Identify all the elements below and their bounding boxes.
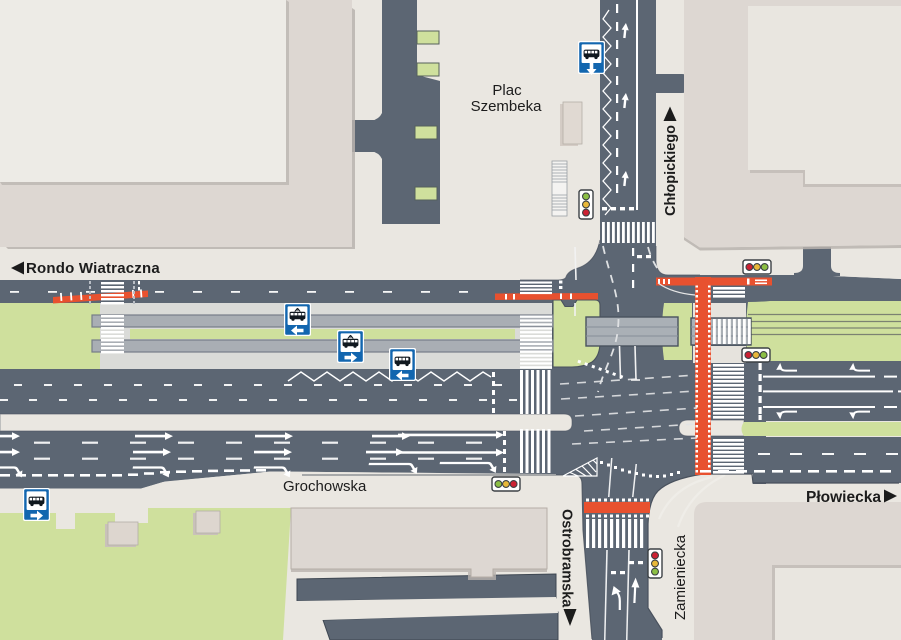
svg-text:Grochowska: Grochowska — [283, 478, 367, 495]
svg-text:Szembeka: Szembeka — [471, 98, 543, 115]
svg-text:Ostrobramska: Ostrobramska — [559, 509, 575, 608]
svg-text:Rondo Wiatraczna: Rondo Wiatraczna — [26, 260, 160, 277]
svg-text:Zamieniecka: Zamieniecka — [672, 534, 689, 620]
svg-text:Płowiecka: Płowiecka — [806, 489, 881, 506]
svg-text:Plac: Plac — [492, 82, 522, 99]
svg-text:Chłopickiego: Chłopickiego — [663, 125, 679, 216]
